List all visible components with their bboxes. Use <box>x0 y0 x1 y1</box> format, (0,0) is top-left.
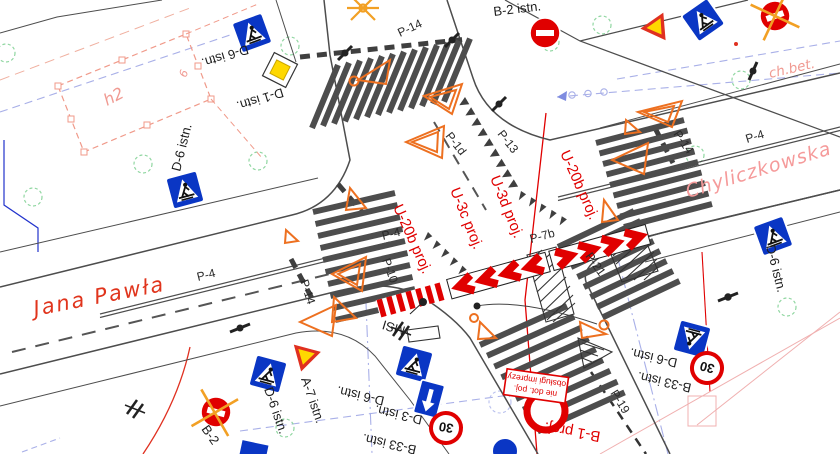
label-a7-istn-west: A-7 istn. <box>298 375 328 425</box>
sign-b1-plate: nie dot. poj. obsługi imprezy <box>503 369 568 403</box>
label-d6-istn-west-lower: D-6 istn. <box>261 385 291 436</box>
sign-b2-crossed-northeast <box>751 0 800 40</box>
label-u3d: U-3d proj. <box>486 173 526 240</box>
speed-limit-value: 30 <box>438 419 455 436</box>
sign-b2-north <box>530 18 560 48</box>
sign-partial-bottom-left <box>239 439 270 454</box>
traffic-plan-canvas: 30 30 nie dot. poj. obsługi imprezy Jana… <box>0 0 840 454</box>
sign-a7-west <box>288 345 321 375</box>
label-d6-istn-east-lower: D-6 istn. <box>628 345 679 371</box>
sign-partial-bottom-center <box>492 438 518 454</box>
label-b33-istn-center: B-33 istn. <box>361 431 418 454</box>
label-p14-west: P-14 <box>297 278 318 307</box>
building-label: h2 <box>100 83 127 109</box>
crosswalk-east <box>596 120 712 227</box>
label-u3c: U-3c proj. <box>446 185 486 252</box>
label-p13: P-13 <box>495 127 522 156</box>
sign-d6-northeast <box>681 0 726 42</box>
hydrant-symbol-2 <box>125 400 145 418</box>
label-d6-istn-nw: D-6 istn. <box>200 42 251 70</box>
street-lamp-icon <box>347 0 379 20</box>
plan-drawing: 30 30 nie dot. poj. obsługi imprezy Jana… <box>0 0 840 454</box>
label-b33-istn-east: B-33 istn. <box>636 369 693 396</box>
label-b1-proj: B-1 proj. <box>543 418 602 445</box>
label-u20b-east: U-20b proj. <box>556 148 602 223</box>
label-p14-north: P-14 <box>395 16 424 40</box>
label-d6-istn-west-upper: D-6 istn. <box>168 122 194 173</box>
utility-number: 6 <box>177 68 192 79</box>
label-d1-istn: D-1 istn. <box>235 85 286 113</box>
label-p4-west: P-4 <box>195 266 217 284</box>
sidewalk-note: ch.bet. <box>767 56 816 82</box>
sign-d6-center <box>394 344 433 383</box>
sign-a7-northeast <box>640 13 677 49</box>
label-d6-istn-east-upper: D-6 istn. <box>763 243 789 294</box>
label-p4-east: P-4 <box>744 127 766 146</box>
msi-label: MSI <box>380 317 407 338</box>
sign-d6-west-upper <box>165 170 204 209</box>
street-name-jana-pawla: Jana Pawła <box>27 272 167 322</box>
parcel-blue-lines <box>4 140 38 252</box>
